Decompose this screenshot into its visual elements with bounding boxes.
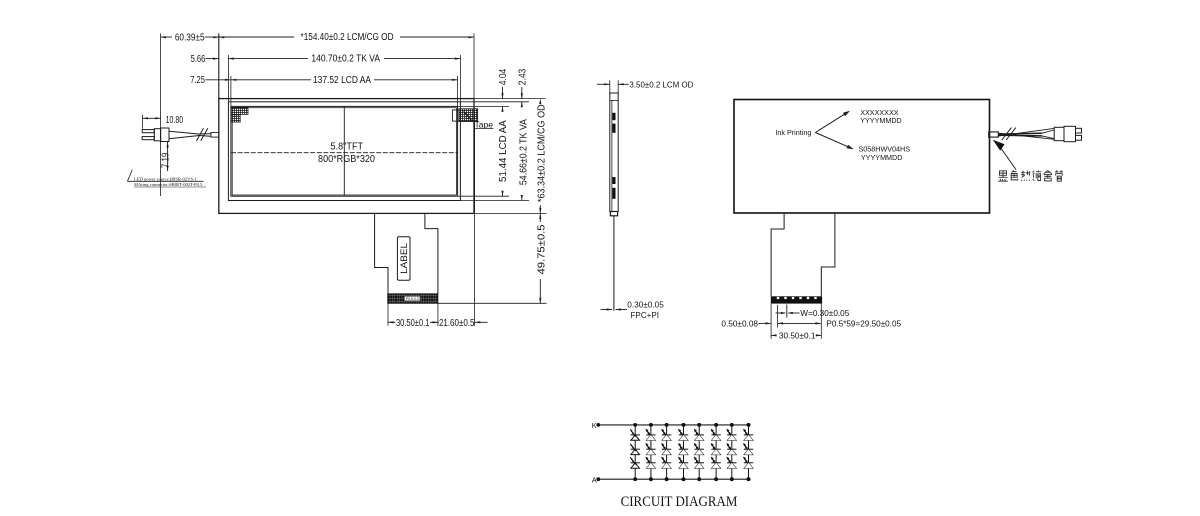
svg-text:7.19: 7.19	[160, 152, 171, 168]
svg-text:140.70±0.2 TK VA: 140.70±0.2 TK VA	[311, 54, 380, 65]
svg-text:MAting connector:SB80T-002T-P0: MAting connector:SB80T-002T-P0.5	[134, 182, 203, 187]
svg-text:*154.40±0.2 LCM/CG OD: *154.40±0.2 LCM/CG OD	[301, 32, 394, 43]
svg-text:LED power source:B8SR-02VS-1: LED power source:B8SR-02VS-1	[134, 176, 197, 181]
svg-text:*63.34±0.2 LCM/CG OD: *63.34±0.2 LCM/CG OD	[537, 104, 548, 202]
svg-text:51.44 LCD AA: 51.44 LCD AA	[498, 120, 509, 182]
svg-text:60.39±5: 60.39±5	[175, 32, 205, 43]
svg-text:P0.5-0.3: P0.5-0.3	[406, 297, 419, 301]
svg-text:LABEL: LABEL	[399, 243, 410, 274]
svg-text:137.52 LCD AA: 137.52 LCD AA	[313, 75, 371, 86]
svg-text:30.50±0.1: 30.50±0.1	[396, 318, 430, 329]
svg-text:7.25: 7.25	[190, 75, 205, 86]
svg-text:5.8"TFT: 5.8"TFT	[331, 142, 364, 153]
svg-text:Ink Printing: Ink Printing	[775, 128, 811, 137]
svg-text:800*RGB*320: 800*RGB*320	[318, 154, 375, 165]
svg-text:A: A	[592, 476, 597, 485]
svg-text:10.80: 10.80	[166, 115, 184, 126]
svg-text:54.66±0.2 TK VA: 54.66±0.2 TK VA	[519, 119, 530, 185]
svg-text:P0.5*59=29.50±0.05: P0.5*59=29.50±0.05	[826, 318, 901, 328]
svg-text:YYYYMMDD: YYYYMMDD	[861, 153, 903, 162]
svg-text:3.50±0.2 LCM OD: 3.50±0.2 LCM OD	[629, 79, 693, 89]
svg-text:W=0.30±0.05: W=0.30±0.05	[800, 308, 849, 318]
svg-text:0.50±0.08: 0.50±0.08	[721, 318, 758, 328]
svg-text:30.50±0.1: 30.50±0.1	[779, 330, 816, 340]
svg-text:CIRCUIT DIAGRAM: CIRCUIT DIAGRAM	[621, 494, 738, 510]
svg-text:2.43: 2.43	[517, 68, 528, 85]
svg-text:0.30±0.05: 0.30±0.05	[627, 299, 664, 309]
svg-text:49.75±0.5: 49.75±0.5	[537, 224, 548, 274]
svg-text:FPC+PI: FPC+PI	[631, 310, 660, 320]
svg-text:5.66: 5.66	[191, 54, 206, 65]
svg-text:Tape: Tape	[475, 119, 494, 129]
svg-text:4.04: 4.04	[498, 68, 509, 85]
svg-text:K: K	[592, 421, 597, 430]
svg-text:21.60±0.5: 21.60±0.5	[439, 318, 475, 329]
svg-text:YYYYMMDD: YYYYMMDD	[860, 116, 902, 125]
